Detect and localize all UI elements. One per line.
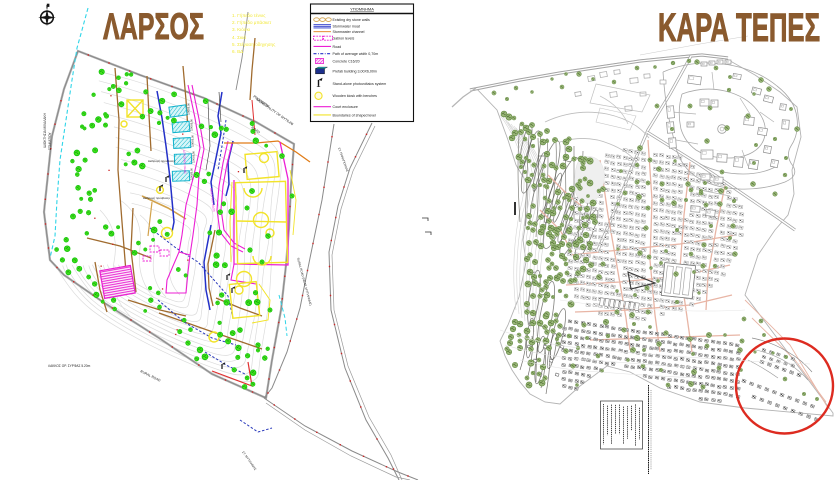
svg-text:2. Γήπεδο μπάσκετ: 2. Γήπεδο μπάσκετ — [232, 19, 271, 25]
svg-text:Stormwater channel: Stormwater channel — [333, 30, 365, 34]
svg-text:MUNICIPALITY OF MYTILINI: MUNICIPALITY OF MYTILINI — [255, 98, 294, 127]
svg-text:3,00X6,00: 3,00X6,00 — [190, 119, 194, 131]
svg-text:Path of average width 0,70m: Path of average width 0,70m — [333, 52, 379, 56]
svg-text:ΛΑΚΚΟΣ ΟΡ. ΣΥΡΦΑΣ 5.20m: ΛΑΚΚΟΣ ΟΡ. ΣΥΡΦΑΣ 5.20m — [48, 364, 91, 368]
svg-text:RURAL ROAD (ΝΕΑΡ. ΜΥΤΙΛΗΝΗΣ): RURAL ROAD (ΝΕΑΡ. ΜΥΤΙΛΗΝΗΣ) — [296, 257, 313, 306]
svg-text:ΚΑΡΑ ΤΕΠΕΣ: ΚΑΡΑ ΤΕΠΕΣ — [658, 6, 820, 50]
svg-text:Court enclosure: Court enclosure — [333, 105, 358, 109]
svg-text:Διαδρομή πρόσβασης: Διαδρομή πρόσβασης — [143, 196, 171, 200]
svg-text:Road: Road — [333, 45, 342, 49]
svg-text:ΣΤ. ΠΑΝΑΓΙΟΥΔΑΣ: ΣΤ. ΠΑΝΑΓΙΟΥΔΑΣ — [337, 147, 350, 173]
svg-text:ΛΑΡΣΟΣ: ΛΑΡΣΟΣ — [103, 6, 204, 47]
svg-text:ΚΕΝΤΡΙΚΗ ΟΔΟΣ: ΚΕΝΤΡΙΚΗ ΟΔΟΣ — [209, 188, 216, 213]
svg-text:Gabion levels: Gabion levels — [333, 37, 355, 41]
svg-text:Prefab building 3,00X6,00m: Prefab building 3,00X6,00m — [333, 70, 377, 74]
svg-text:Stand-alone photovoltaics syst: Stand-alone photovoltaics system — [333, 82, 387, 86]
svg-text:Wooden kiosk with benches: Wooden kiosk with benches — [333, 94, 378, 98]
svg-text:3,00X6,00: 3,00X6,00 — [191, 135, 195, 147]
svg-text:6. ΒΔ: 6. ΒΔ — [232, 49, 243, 54]
svg-text:ΙΔΙΟΚΤΗΣΙΑ ΜΙΧΑΛΑΚΗ: ΙΔΙΟΚΤΗΣΙΑ ΜΙΧΑΛΑΚΗ — [43, 112, 47, 148]
svg-text:Διαδρομή πρόσβασης: Διαδρομή πρόσβασης — [148, 159, 176, 163]
svg-text:3,00X6,00: 3,00X6,00 — [187, 103, 191, 115]
svg-text:1. Γήπεδο τέννις: 1. Γήπεδο τέννις — [232, 12, 266, 18]
svg-text:ΣΤ. ΜΥΤΙΛΗΝΗΣ: ΣΤ. ΜΥΤΙΛΗΝΗΣ — [241, 450, 257, 471]
svg-text:3. Κιόσκι: 3. Κιόσκι — [232, 26, 250, 32]
svg-text:5. Στέγαση οδηγησης: 5. Στέγαση οδηγησης — [232, 41, 276, 47]
svg-text:RURAL ROAD: RURAL ROAD — [140, 369, 162, 383]
svg-text:Stormwater moat: Stormwater moat — [333, 25, 360, 29]
svg-text:3,00X6,00: 3,00X6,00 — [190, 168, 194, 180]
svg-text:4. Σκιά: 4. Σκιά — [232, 34, 246, 40]
svg-text:Boundaries of shaped level: Boundaries of shaped level — [333, 113, 377, 117]
svg-text:Existing dry stone walls: Existing dry stone walls — [333, 18, 371, 22]
svg-text:ΥΠΟΜΝΗΜΑ: ΥΠΟΜΝΗΜΑ — [350, 7, 374, 12]
svg-text:3,00X6,00: 3,00X6,00 — [192, 151, 196, 163]
svg-text:Concrete C16/20: Concrete C16/20 — [333, 59, 360, 63]
svg-text:ΣΤΑΜΑΤΙΟΥ: ΣΤΑΜΑΤΙΟΥ — [48, 131, 52, 150]
